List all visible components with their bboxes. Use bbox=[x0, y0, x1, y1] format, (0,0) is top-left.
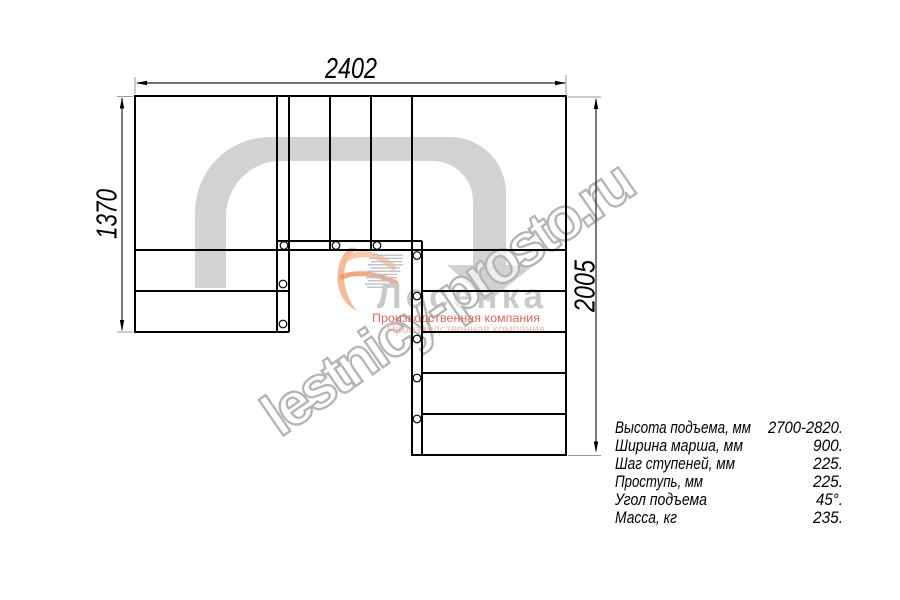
svg-text:Производственная компания: Производственная компания bbox=[387, 322, 545, 336]
svg-text:1370: 1370 bbox=[92, 189, 124, 239]
svg-text:2402: 2402 bbox=[324, 53, 377, 85]
svg-text:Ширина марша, мм: Ширина марша, мм bbox=[615, 437, 743, 455]
svg-text:45°.: 45°. bbox=[816, 491, 843, 509]
svg-text:225.: 225. bbox=[812, 473, 843, 491]
svg-text:225.: 225. bbox=[812, 455, 843, 473]
svg-text:Высота подъема, мм: Высота подъема, мм bbox=[615, 419, 751, 437]
svg-text:Угол подъема: Угол подъема bbox=[614, 491, 707, 509]
svg-text:235.: 235. bbox=[812, 509, 843, 527]
svg-text:900.: 900. bbox=[813, 437, 843, 455]
svg-text:Масса, кг: Масса, кг bbox=[615, 509, 677, 527]
svg-text:Проступь, мм: Проступь, мм bbox=[615, 473, 703, 491]
svg-text:2005: 2005 bbox=[570, 259, 602, 313]
svg-text:2700-2820.: 2700-2820. bbox=[767, 419, 843, 437]
svg-text:Шаг ступеней, мм: Шаг ступеней, мм bbox=[615, 455, 735, 473]
